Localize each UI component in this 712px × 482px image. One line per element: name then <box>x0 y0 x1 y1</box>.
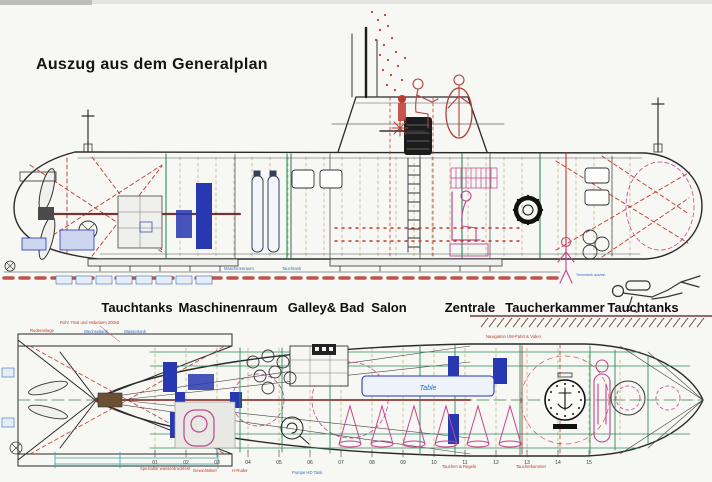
frame-number: 07 <box>338 460 344 466</box>
note-rohr: Rohr 70x6 und Hebelarm 200x8 <box>60 320 120 325</box>
frame-number: 14 <box>555 460 561 466</box>
frame-number: 06 <box>307 460 313 466</box>
bow-viewport-2 <box>656 386 680 410</box>
frame-number: 12 <box>493 460 499 466</box>
note-pumpe: Pumpe HD Tank <box>292 470 323 475</box>
frame-number: 08 <box>369 460 375 466</box>
frame-number: 04 <box>245 460 251 466</box>
ground-hatching <box>470 316 712 327</box>
side-view: Maschinenraum Tauchtank Trimmtank aus/ei… <box>4 11 702 312</box>
periscope-masts <box>352 34 377 97</box>
plan-tag-boxes <box>2 368 14 427</box>
small-panel-2 <box>60 230 94 250</box>
note-spezialtuer: Spezialtür wasserdruckfest <box>140 466 191 471</box>
plan-prop-hub <box>98 393 122 407</box>
note-tauchen: Tauchen & Regeln <box>442 464 477 469</box>
keel-note-1: Maschinenraum <box>224 266 254 271</box>
frame-number: 05 <box>276 460 282 466</box>
frame-number: 15 <box>586 460 592 466</box>
salon-figure <box>450 191 488 256</box>
note-taucherkammer: Taucherkammer <box>516 464 547 469</box>
main-hatch <box>545 373 585 429</box>
escape-hatch-ring <box>513 195 543 225</box>
cabin-windows <box>292 168 609 205</box>
plan-prop-blade-1 <box>27 378 68 397</box>
air-flasks <box>252 171 279 252</box>
keel-note-2: Tauchtank <box>282 266 302 271</box>
swimming-diver-figure <box>613 276 701 312</box>
note-ruderanlage: Ruderanlage <box>30 328 55 333</box>
note-wassertank: Wassertank <box>124 329 147 334</box>
tower-figure-standing <box>446 75 472 138</box>
battery-block <box>196 183 212 249</box>
frame-number: 10 <box>431 460 437 466</box>
plan-diver-figure <box>594 360 610 442</box>
note-navigation: Navigation UW-Fahrt & Video <box>486 334 541 339</box>
note-hruder: H-Ruder <box>232 468 248 473</box>
side-bulkheads-green <box>166 154 540 258</box>
side-aft-blue-box <box>22 238 46 250</box>
generalplan-sheet: Auszug aus dem Generalplan Tauchtanks Ma… <box>0 0 712 482</box>
plan-prop-blade-2 <box>27 402 68 421</box>
galley-block <box>290 344 348 386</box>
bubble-trail <box>371 11 406 91</box>
frame-number: 03 <box>214 460 220 466</box>
plan-view: Table <box>2 320 703 475</box>
diver-note: Trimmtank aus/ein <box>576 273 605 277</box>
table-label: Table <box>420 385 437 392</box>
frame-number: 09 <box>400 460 406 466</box>
valve-wheel <box>392 120 408 136</box>
plan-operator-figure <box>175 402 235 448</box>
note-gewichtskiel: Gewichtskiel <box>193 468 217 473</box>
side-bow-frame-dashed <box>626 162 694 250</box>
plan-drawing: Maschinenraum Tauchtank Trimmtank aus/ei… <box>0 0 712 482</box>
motor-block <box>176 210 192 238</box>
